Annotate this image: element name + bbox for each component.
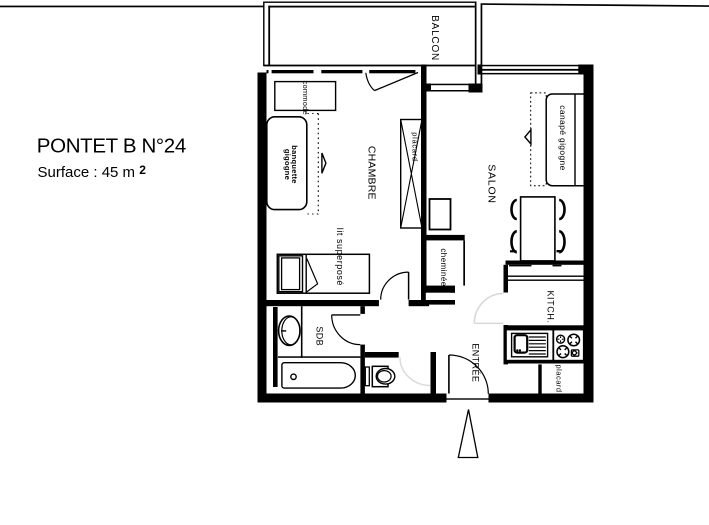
svg-text:PONTET B N°24: PONTET B N°24 [37, 135, 186, 158]
svg-text:SDB: SDB [314, 326, 324, 346]
svg-text:commode: commode [301, 81, 310, 115]
svg-text:SALON: SALON [486, 164, 498, 204]
svg-text:placard: placard [411, 132, 420, 162]
svg-text:Surface : 45 m 2: Surface : 45 m 2 [38, 163, 147, 181]
svg-text:cheminée: cheminée [439, 248, 448, 286]
svg-text:BALCON: BALCON [429, 15, 440, 61]
svg-text:gigogne: gigogne [283, 149, 292, 180]
svg-text:KITCH.: KITCH. [546, 290, 556, 323]
svg-text:CHAMBRE: CHAMBRE [366, 146, 378, 200]
svg-text:lit superposé: lit superposé [335, 228, 345, 286]
svg-text:ENTRÉE: ENTRÉE [471, 343, 481, 382]
svg-text:placard: placard [554, 364, 563, 392]
svg-text:canapé gigogne: canapé gigogne [558, 105, 568, 170]
